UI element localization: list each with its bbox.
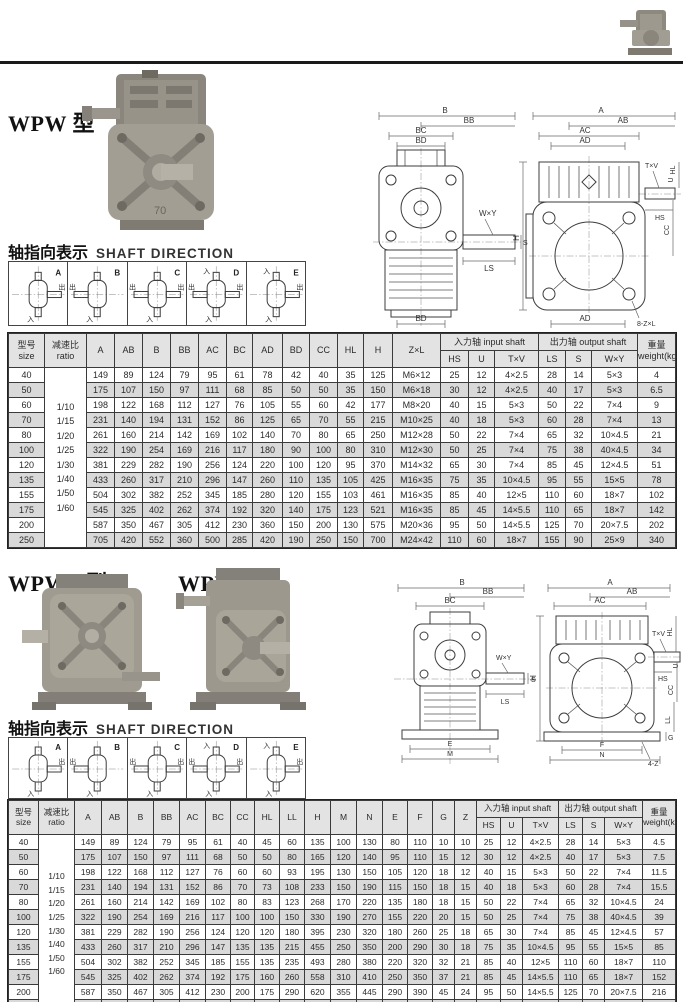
dim-cell: 40	[310, 368, 338, 383]
dim-cell: 130	[331, 865, 357, 880]
dim-cell: 195	[305, 865, 331, 880]
svg-text:入: 入	[263, 742, 270, 750]
dim-cell: 280	[331, 955, 357, 970]
dim-cell: M8×20	[393, 398, 441, 413]
shaft-direction-cell-A: A入出	[9, 738, 68, 798]
dim-cell: 38	[583, 910, 605, 925]
dim-cell: M6×18	[393, 383, 441, 398]
svg-text:入: 入	[203, 267, 210, 275]
dim-cell: 35	[338, 383, 364, 398]
dim-cell: 190	[331, 910, 357, 925]
dim-cell: 97	[171, 383, 199, 398]
dim-cell: 169	[154, 910, 180, 925]
dim-cell: 124	[143, 368, 171, 383]
dim-cell: 110	[408, 835, 433, 850]
dim-label-ac2: AC	[594, 596, 605, 605]
dim-cell: 169	[171, 443, 199, 458]
dim-label-ls2: LS	[501, 699, 510, 706]
column-header: A	[87, 334, 115, 368]
dim-cell: 220	[357, 895, 383, 910]
dim-cell: 95	[180, 835, 206, 850]
dim-cell: 40	[441, 398, 469, 413]
dim-cell: 420	[253, 533, 283, 548]
size-cell: 200	[9, 985, 39, 1000]
wpw-dimension-drawing: B BB BC BD W×Y S LS BD A AB	[333, 104, 681, 330]
dim-cell: 80	[280, 850, 305, 865]
svg-text:E: E	[293, 743, 299, 752]
dim-cell: 160	[115, 428, 143, 443]
dim-cell: 305	[154, 985, 180, 1000]
dim-cell: 107	[115, 383, 143, 398]
dim-label-bd: BD	[415, 136, 426, 145]
dim-cell: 60	[469, 533, 495, 548]
dim-cell: 10×4.5	[495, 473, 539, 488]
dim-cell: 18×7	[592, 488, 638, 503]
dim-cell: 493	[305, 955, 331, 970]
dim-cell: 165	[305, 850, 331, 865]
dim-cell: 80	[338, 443, 364, 458]
dim-cell: 320	[357, 925, 383, 940]
dim-cell: 30	[477, 850, 501, 865]
svg-text:E: E	[293, 268, 299, 277]
dim-cell: 14×5.5	[495, 518, 539, 533]
dim-cell: 10	[455, 835, 477, 850]
dim-label-wxy2: W×Y	[496, 655, 512, 662]
dim-cell: 60	[231, 865, 255, 880]
dim-cell: 55	[283, 398, 310, 413]
dim-cell: 21	[455, 970, 477, 985]
dim-cell: 433	[75, 940, 102, 955]
dim-cell: 100	[310, 443, 338, 458]
column-header: B	[143, 334, 171, 368]
dim-label-bc: BC	[415, 126, 426, 135]
dim-cell: 317	[143, 473, 171, 488]
dim-cell: 390	[408, 985, 433, 1000]
table-row: 1354332603172102961471351352154552503502…	[9, 940, 676, 955]
column-header: BC	[227, 334, 253, 368]
dim-cell: 360	[253, 518, 283, 533]
dim-cell: 68	[227, 383, 253, 398]
column-header: 入力轴 input shaft	[477, 801, 559, 818]
dim-cell: 50	[477, 895, 501, 910]
shaft-direction-heading-2-en: SHAFT DIRECTION	[96, 722, 234, 737]
column-header: H	[305, 801, 331, 835]
dim-cell: 25×9	[592, 533, 638, 548]
dim-cell: 296	[180, 940, 206, 955]
dim-cell: 40×4.5	[592, 443, 638, 458]
dim-cell: 102	[206, 895, 231, 910]
dim-cell: 75	[441, 473, 469, 488]
dim-cell: 95	[539, 473, 566, 488]
dim-cell: 12	[501, 835, 523, 850]
dim-label-ac: AC	[579, 126, 590, 135]
svg-text:出: 出	[58, 757, 65, 766]
dim-cell: 50	[231, 850, 255, 865]
svg-text:D: D	[234, 268, 240, 277]
dim-cell: 85	[441, 503, 469, 518]
dim-cell: 75	[559, 910, 583, 925]
dim-label-zl: 8-Z×L	[637, 321, 656, 328]
dim-label-ad-bottom: AD	[579, 314, 590, 323]
dim-cell: 120	[408, 865, 433, 880]
svg-text:C: C	[174, 743, 180, 752]
dim-cell: 290	[383, 985, 408, 1000]
dim-cell: 115	[383, 880, 408, 895]
dim-cell: 40	[441, 413, 469, 428]
size-cell: 250	[9, 533, 45, 548]
dim-cell: 125	[253, 413, 283, 428]
dim-cell: 190	[357, 880, 383, 895]
dim-cell: 50	[283, 383, 310, 398]
dim-label-bd-bottom: BD	[415, 314, 426, 323]
column-header: E	[383, 801, 408, 835]
dim-cell: 18×7	[605, 970, 643, 985]
dim-label-ll: LL	[665, 716, 672, 724]
shaft-direction-cell-D: D入入出出	[187, 738, 246, 798]
svg-text:出: 出	[188, 282, 195, 291]
dim-cell: 60	[566, 488, 592, 503]
dim-cell: 65	[583, 970, 605, 985]
dim-cell: 4.5	[643, 835, 676, 850]
dim-cell: 50	[501, 985, 523, 1000]
dim-cell: 467	[128, 985, 154, 1000]
dim-cell: 150	[283, 518, 310, 533]
table-row: 1003221902541692161171809010080310M12×30…	[9, 443, 676, 458]
dim-cell: 18	[433, 895, 455, 910]
dim-cell: 55	[566, 473, 592, 488]
dim-cell: 85	[539, 458, 566, 473]
column-header: 型号 size	[9, 334, 45, 368]
dim-cell: 620	[305, 985, 331, 1000]
svg-text:入: 入	[27, 790, 34, 798]
dim-cell: 18×7	[592, 503, 638, 518]
dim-cell: 130	[357, 835, 383, 850]
svg-text:B: B	[115, 743, 121, 752]
svg-text:C: C	[174, 268, 180, 277]
dim-cell: 175	[75, 850, 102, 865]
dim-cell: 350	[115, 518, 143, 533]
dim-cell: 7×4	[495, 458, 539, 473]
dim-label-ab: AB	[618, 116, 629, 125]
size-cell: 50	[9, 850, 39, 865]
dim-cell: 112	[171, 398, 199, 413]
dim-cell: 160	[255, 970, 280, 985]
dim-cell: 305	[171, 518, 199, 533]
shaft-direction-cell-D: D入入出出	[187, 262, 246, 325]
header-divider	[0, 61, 683, 64]
dim-cell: 18×7	[605, 955, 643, 970]
dim-cell: 260	[115, 473, 143, 488]
dim-cell: 250	[364, 428, 393, 443]
dim-cell: M14×32	[393, 458, 441, 473]
dim-cell: 142	[638, 503, 676, 518]
dim-cell: 14	[566, 368, 592, 383]
dim-label-b2: B	[459, 578, 464, 587]
dim-cell: 320	[408, 955, 433, 970]
dim-cell: 521	[364, 503, 393, 518]
dim-cell: 552	[143, 533, 171, 548]
dim-cell: 261	[75, 895, 102, 910]
size-cell: 50	[9, 383, 45, 398]
dim-label-m: M	[447, 751, 453, 758]
column-header: AC	[199, 334, 227, 368]
dim-cell: 280	[253, 488, 283, 503]
table-row: 250705420552360500285420190250150700M24×…	[9, 533, 676, 548]
dim-cell: 127	[199, 398, 227, 413]
column-header: AD	[253, 334, 283, 368]
dim-cell: 4×2.5	[495, 383, 539, 398]
dim-cell: 155	[310, 488, 338, 503]
dim-cell: 282	[128, 925, 154, 940]
dim-cell: 261	[87, 428, 115, 443]
column-subheader: W×Y	[605, 818, 643, 835]
shaft-direction-cell-B: B入出	[68, 262, 127, 325]
dim-cell: 107	[102, 850, 128, 865]
dim-cell: 80	[231, 895, 255, 910]
case-size-label: 70	[154, 205, 166, 217]
dim-cell: 97	[154, 850, 180, 865]
dim-cell: 28	[583, 880, 605, 895]
table-row: 7023114019413115286125657055215M10×25401…	[9, 413, 676, 428]
dim-cell: 135	[255, 940, 280, 955]
dim-cell: 60	[559, 880, 583, 895]
dim-cell: 125	[559, 985, 583, 1000]
dim-cell: 150	[143, 383, 171, 398]
dim-cell: 108	[280, 880, 305, 895]
dim-cell: 85	[441, 488, 469, 503]
dim-cell: 705	[87, 533, 115, 548]
dim-cell: 10	[433, 835, 455, 850]
column-header: 出力轴 output shaft	[559, 801, 643, 818]
dim-label-ab2: AB	[627, 587, 638, 596]
dim-cell: 110	[283, 473, 310, 488]
dim-cell: 38	[566, 443, 592, 458]
wpwa-wpws-dimension-drawing: B BB BC W×Y S LS E M A AB	[358, 578, 682, 768]
dim-cell: 50	[441, 428, 469, 443]
dim-cell: 149	[87, 368, 115, 383]
dim-cell: 65	[566, 503, 592, 518]
dim-cell: M12×30	[393, 443, 441, 458]
dim-cell: 18	[455, 925, 477, 940]
dim-cell: 7×4	[523, 925, 559, 940]
dim-label-hs2: HS	[658, 676, 668, 683]
dim-cell: 700	[364, 533, 393, 548]
dim-cell: 135	[310, 473, 338, 488]
dim-label-4z: 4-Z	[648, 761, 659, 768]
dim-cell: 40	[539, 383, 566, 398]
table-row: 8026116021414216910280831232681702201351…	[9, 895, 676, 910]
column-subheader: S	[583, 818, 605, 835]
dim-cell: 381	[75, 925, 102, 940]
dim-cell: 402	[143, 503, 171, 518]
dim-cell: 455	[305, 940, 331, 955]
dim-cell: 382	[143, 488, 171, 503]
dim-cell: 395	[305, 925, 331, 940]
dim-cell: 70	[310, 413, 338, 428]
svg-text:出: 出	[236, 757, 243, 766]
dim-cell: 80	[383, 835, 408, 850]
dim-cell: 360	[171, 533, 199, 548]
size-cell: 100	[9, 910, 39, 925]
dim-cell: 185	[206, 955, 231, 970]
dim-cell: 330	[305, 910, 331, 925]
dim-label-cc2: CC	[668, 685, 675, 695]
dim-cell: 461	[364, 488, 393, 503]
column-header: AB	[102, 801, 128, 835]
svg-text:出: 出	[69, 282, 76, 291]
column-subheader: LS	[539, 351, 566, 368]
dim-cell: 7×4	[523, 910, 559, 925]
dim-cell: 40	[231, 835, 255, 850]
table-row: 1003221902541692161171001001503301902701…	[9, 910, 676, 925]
column-subheader: T×V	[523, 818, 559, 835]
dim-cell: 122	[115, 398, 143, 413]
dim-cell: 28	[559, 835, 583, 850]
dim-cell: 18	[433, 865, 455, 880]
table-row: 401/10 1/15 1/20 1/25 1/30 1/40 1/50 1/6…	[9, 368, 676, 383]
dim-cell: 117	[227, 443, 253, 458]
dim-cell: 50	[559, 865, 583, 880]
dim-cell: 5×3	[523, 880, 559, 895]
dim-cell: 350	[408, 970, 433, 985]
dim-cell: 124	[227, 458, 253, 473]
shaft-direction-heading-zh: 轴指向表示	[8, 245, 88, 262]
dim-label-u: U	[668, 177, 675, 182]
dim-cell: 40	[501, 955, 523, 970]
dim-cell: 25	[477, 835, 501, 850]
dim-cell: 15×5	[605, 940, 643, 955]
column-subheader: T×V	[495, 351, 539, 368]
dim-cell: 140	[357, 850, 383, 865]
dim-cell: 75	[477, 940, 501, 955]
dim-cell: 79	[154, 835, 180, 850]
column-header: LL	[280, 801, 305, 835]
dim-cell: 95	[477, 985, 501, 1000]
dim-label-ls: LS	[484, 264, 494, 273]
dim-cell: 12	[501, 850, 523, 865]
dim-cell: 190	[283, 533, 310, 548]
dim-cell: 78	[638, 473, 676, 488]
dim-cell: 168	[128, 865, 154, 880]
dim-cell: 152	[180, 880, 206, 895]
dim-cell: 4	[638, 368, 676, 383]
svg-text:出: 出	[237, 282, 244, 291]
dim-cell: M10×25	[393, 413, 441, 428]
dim-cell: 192	[206, 970, 231, 985]
dim-cell: 18	[469, 413, 495, 428]
dim-cell: 322	[87, 443, 115, 458]
column-subheader: S	[566, 351, 592, 368]
dim-cell: 65	[477, 925, 501, 940]
column-header: A	[75, 801, 102, 835]
dim-cell: 175	[310, 503, 338, 518]
dim-cell: 60	[280, 835, 305, 850]
dim-cell: 124	[206, 925, 231, 940]
dim-cell: 180	[408, 895, 433, 910]
dim-cell: 40	[477, 865, 501, 880]
dim-cell: 24	[455, 985, 477, 1000]
dim-cell: 230	[331, 925, 357, 940]
dim-cell: 90	[566, 533, 592, 548]
dim-cell: 152	[199, 413, 227, 428]
dim-cell: 55	[338, 413, 364, 428]
dim-cell: 65	[539, 428, 566, 443]
dim-cell: 170	[331, 895, 357, 910]
dim-cell: 135	[305, 835, 331, 850]
dim-cell: 120	[331, 850, 357, 865]
wpws-product-photo	[176, 566, 308, 712]
table-row: 155504302382252345185280120155103461M16×…	[9, 488, 676, 503]
dim-cell: 147	[206, 940, 231, 955]
size-cell: 135	[9, 473, 45, 488]
dim-cell: 230	[206, 985, 231, 1000]
dim-cell: 302	[115, 488, 143, 503]
dim-cell: 102	[638, 488, 676, 503]
dim-cell: 18×7	[495, 533, 539, 548]
dim-cell: 4×2.5	[523, 835, 559, 850]
dim-cell: 110	[408, 850, 433, 865]
svg-text:入: 入	[27, 316, 34, 324]
svg-text:出: 出	[177, 282, 184, 291]
dim-cell: 587	[87, 518, 115, 533]
dim-cell: 250	[310, 533, 338, 548]
dim-cell: 215	[280, 940, 305, 955]
size-cell: 40	[9, 368, 45, 383]
dim-cell: M16×35	[393, 503, 441, 518]
dim-cell: 210	[154, 940, 180, 955]
column-subheader: U	[469, 351, 495, 368]
dim-cell: 252	[171, 488, 199, 503]
dim-cell: 35	[338, 368, 364, 383]
dim-cell: 10×4.5	[605, 895, 643, 910]
dim-cell: 5×3	[605, 850, 643, 865]
dim-cell: 70	[283, 428, 310, 443]
dim-label-bb2: BB	[483, 587, 494, 596]
dim-cell: 34	[638, 443, 676, 458]
dim-cell: 131	[154, 880, 180, 895]
dim-cell: M6×12	[393, 368, 441, 383]
wpwa-product-photo	[22, 572, 160, 712]
dim-cell: 467	[143, 518, 171, 533]
shaft-direction-cell-C: C入出出	[128, 262, 187, 325]
dim-cell: 21	[638, 428, 676, 443]
column-header: 型号 size	[9, 801, 39, 835]
svg-text:出: 出	[188, 757, 195, 766]
dim-cell: 149	[75, 835, 102, 850]
dim-cell: 90	[283, 443, 310, 458]
table-row: 2005873504673054122302001752906203554452…	[9, 985, 676, 1000]
table-row: 12038122928219025612422010012095370M14×3…	[9, 458, 676, 473]
dim-cell: 169	[180, 895, 206, 910]
table-row: 1555043023822523451851551352354932803802…	[9, 955, 676, 970]
dim-cell: 45	[469, 503, 495, 518]
dim-cell: 22	[469, 428, 495, 443]
dim-cell: 155	[539, 533, 566, 548]
dim-cell: 310	[331, 970, 357, 985]
dim-cell: 290	[280, 985, 305, 1000]
size-cell: 70	[9, 880, 39, 895]
dim-cell: 102	[227, 428, 253, 443]
dim-cell: 150	[408, 880, 433, 895]
dim-cell: 250	[331, 940, 357, 955]
size-cell: 200	[9, 518, 45, 533]
dim-cell: 6.5	[638, 383, 676, 398]
dim-cell: 42	[338, 398, 364, 413]
column-header: 减速比 ratio	[45, 334, 87, 368]
dim-cell: 7×4	[495, 443, 539, 458]
dim-cell: 142	[154, 895, 180, 910]
dim-cell: 175	[231, 970, 255, 985]
